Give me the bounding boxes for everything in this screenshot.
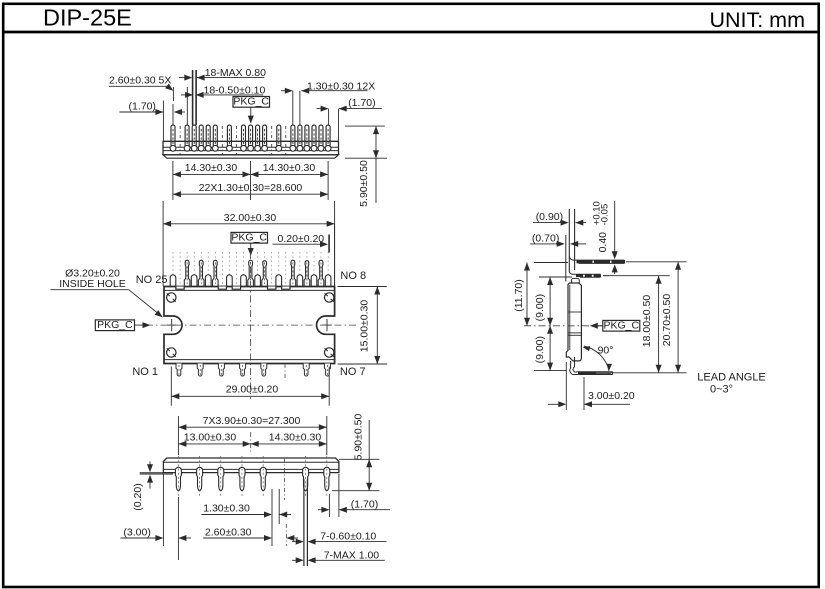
- svg-text:NO 8: NO 8: [340, 270, 366, 282]
- svg-text:14.30±0.30: 14.30±0.30: [269, 432, 322, 444]
- svg-text:14.30±0.30: 14.30±0.30: [263, 162, 316, 174]
- svg-text:7-MAX 1.00: 7-MAX 1.00: [324, 550, 380, 562]
- svg-text:(3.00): (3.00): [123, 527, 150, 539]
- svg-text:29.00±0.20: 29.00±0.20: [226, 384, 279, 396]
- svg-text:PKG_C: PKG_C: [603, 320, 639, 332]
- svg-text:NO 1: NO 1: [132, 366, 158, 378]
- svg-text:0~3°: 0~3°: [710, 384, 733, 396]
- svg-text:(0.90): (0.90): [536, 211, 563, 223]
- svg-text:(0.70): (0.70): [532, 233, 559, 245]
- svg-text:7X3.90±0.30=27.300: 7X3.90±0.30=27.300: [203, 415, 301, 427]
- svg-text:INSIDE HOLE: INSIDE HOLE: [59, 278, 126, 290]
- svg-text:32.00±0.30: 32.00±0.30: [224, 212, 277, 224]
- svg-text:1.30±0.30: 1.30±0.30: [203, 503, 250, 515]
- svg-text:LEAD ANGLE: LEAD ANGLE: [697, 372, 765, 384]
- svg-text:2.60±0.30: 2.60±0.30: [205, 527, 252, 539]
- svg-text:7-0.60±0.10: 7-0.60±0.10: [320, 531, 376, 543]
- svg-text:13.00±0.30: 13.00±0.30: [184, 432, 237, 444]
- svg-text:22X1.30±0.30=28.600: 22X1.30±0.30=28.600: [199, 182, 303, 194]
- svg-text:2.60±0.30 5X: 2.60±0.30 5X: [109, 75, 171, 87]
- svg-text:5.90±0.50: 5.90±0.50: [358, 160, 370, 207]
- svg-text:(1.70): (1.70): [351, 499, 378, 511]
- svg-text:3.00±0.20: 3.00±0.20: [588, 390, 635, 402]
- svg-text:NO 25: NO 25: [136, 274, 168, 286]
- svg-text:(11.70): (11.70): [513, 279, 525, 312]
- svg-text:(0.20): (0.20): [132, 483, 144, 510]
- svg-text:PKG_C: PKG_C: [231, 232, 267, 244]
- svg-text:-0.05: -0.05: [600, 204, 611, 226]
- svg-text:20.70±0.50: 20.70±0.50: [661, 294, 673, 347]
- svg-text:NO 7: NO 7: [340, 366, 366, 378]
- svg-text:18.00±0.50: 18.00±0.50: [641, 295, 653, 348]
- svg-text:(9.00): (9.00): [534, 294, 546, 321]
- svg-text:(1.70): (1.70): [348, 97, 375, 109]
- svg-text:DIP-25E: DIP-25E: [43, 5, 132, 31]
- svg-text:0.40: 0.40: [597, 232, 609, 253]
- svg-text:5.90±0.50: 5.90±0.50: [353, 414, 365, 461]
- svg-text:0.20±0.20: 0.20±0.20: [278, 233, 325, 245]
- svg-text:PKG_C: PKG_C: [97, 319, 133, 331]
- svg-text:15.00±0.30: 15.00±0.30: [359, 300, 371, 353]
- svg-text:UNIT: mm: UNIT: mm: [709, 8, 805, 32]
- svg-text:14.30±0.30: 14.30±0.30: [185, 162, 238, 174]
- svg-text:(9.00): (9.00): [534, 336, 546, 363]
- svg-text:(1.70): (1.70): [129, 100, 156, 112]
- svg-text:PKG_C: PKG_C: [233, 96, 269, 108]
